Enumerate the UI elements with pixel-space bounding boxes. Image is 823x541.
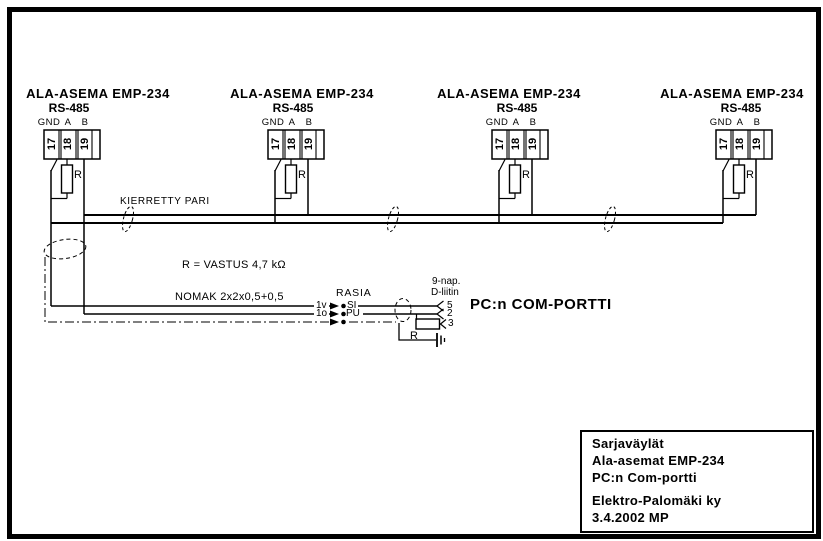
station-interface-label: RS-485 <box>265 102 321 115</box>
schematic-canvas: ALA-ASEMA EMP-234RS-485GNDAB171819RALA-A… <box>0 0 823 541</box>
title-block-line-3: PC:n Com-portti <box>592 471 697 485</box>
title-block-line-1: Sarjaväylät <box>592 437 664 451</box>
signal-label-gnd: GND <box>482 118 512 128</box>
terminal-number: 19 <box>303 131 315 157</box>
terminal-number: 18 <box>510 131 522 157</box>
station-interface-label: RS-485 <box>489 102 545 115</box>
station-title: ALA-ASEMA EMP-234 <box>18 87 178 101</box>
pc-resistor-label: R <box>410 330 418 342</box>
connector-label-line2: D-liitin <box>431 287 459 298</box>
terminal-number: 18 <box>286 131 298 157</box>
wire-label-1o: 1o <box>314 308 329 319</box>
resistor-label: R <box>746 169 754 181</box>
resistor-label: R <box>298 169 306 181</box>
signal-label-b: B <box>80 118 90 128</box>
title-block-line-5: 3.4.2002 MP <box>592 511 669 525</box>
terminal-number: 19 <box>527 131 539 157</box>
pc-com-port-label: PC:n COM-PORTTI <box>470 297 612 314</box>
resistor-label: R <box>74 169 82 181</box>
signal-label-a: A <box>735 118 745 128</box>
terminal-number: 19 <box>79 131 91 157</box>
signal-label-a: A <box>63 118 73 128</box>
terminal-number: 17 <box>718 131 730 157</box>
station-interface-label: RS-485 <box>41 102 97 115</box>
signal-label-gnd: GND <box>706 118 736 128</box>
signal-label-b: B <box>752 118 762 128</box>
signal-label-gnd: GND <box>258 118 288 128</box>
resistor-note: R = VASTUS 4,7 kΩ <box>182 259 286 271</box>
twisted-pair-label: KIERRETTY PARI <box>120 196 210 207</box>
terminal-number: 19 <box>751 131 763 157</box>
pin-label-3: 3 <box>448 318 454 329</box>
rasia-title: RASIA <box>336 288 372 300</box>
rasia-terminal-pu: PU <box>346 308 360 319</box>
resistor-label: R <box>522 169 530 181</box>
station-title: ALA-ASEMA EMP-234 <box>652 87 812 101</box>
station-interface-label: RS-485 <box>713 102 769 115</box>
terminal-number: 17 <box>46 131 58 157</box>
cable-note: NOMAK 2x2x0,5+0,5 <box>175 291 284 303</box>
station-title: ALA-ASEMA EMP-234 <box>429 87 589 101</box>
title-block-line-2: Ala-asemat EMP-234 <box>592 454 725 468</box>
title-block-line-4: Elektro-Palomäki ky <box>592 494 721 508</box>
signal-label-b: B <box>528 118 538 128</box>
terminal-number: 18 <box>734 131 746 157</box>
terminal-number: 17 <box>494 131 506 157</box>
signal-label-a: A <box>511 118 521 128</box>
signal-label-b: B <box>304 118 314 128</box>
station-title: ALA-ASEMA EMP-234 <box>222 87 382 101</box>
terminal-number: 17 <box>270 131 282 157</box>
signal-label-a: A <box>287 118 297 128</box>
connector-label-line1: 9-nap. <box>432 276 460 287</box>
terminal-number: 18 <box>62 131 74 157</box>
signal-label-gnd: GND <box>34 118 64 128</box>
